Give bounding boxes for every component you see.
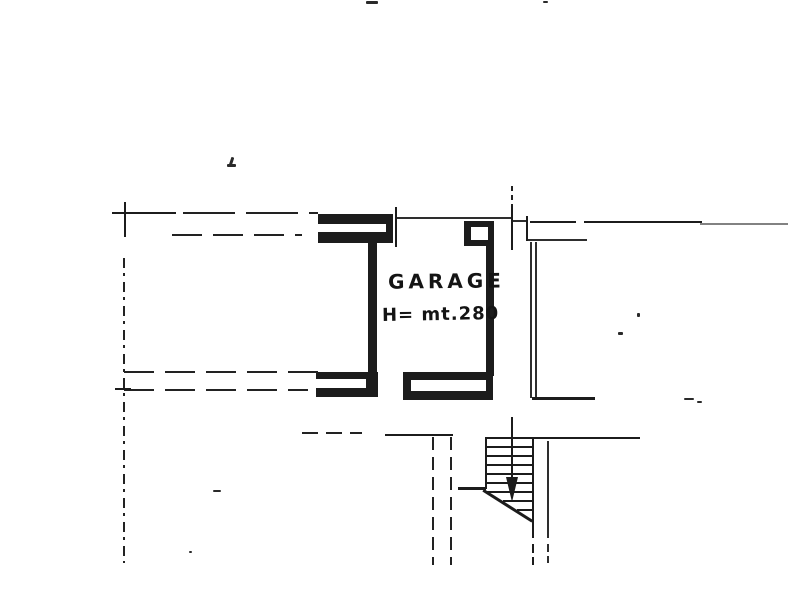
bottom-boundary-dashed-upper bbox=[124, 371, 318, 373]
scan-speck bbox=[684, 398, 694, 400]
stair-top-line bbox=[486, 437, 640, 439]
scan-speck bbox=[189, 551, 192, 553]
ink-mark bbox=[227, 164, 236, 167]
scan-speck bbox=[543, 1, 548, 3]
stair-right-edge-dash bbox=[532, 544, 534, 553]
boundary-line-right-faint bbox=[700, 223, 788, 225]
stair-tread bbox=[486, 473, 533, 475]
bottom-wall-left-cavity bbox=[306, 379, 366, 388]
stair-tread bbox=[486, 446, 533, 448]
right-partition-line bbox=[535, 242, 537, 398]
bottom-boundary-dashed-lower bbox=[124, 389, 308, 391]
stair-direction-arrow-icon bbox=[506, 477, 518, 502]
left-property-line-dashdot bbox=[123, 258, 125, 563]
stair-tread bbox=[486, 464, 533, 466]
survey-tick-vertical bbox=[124, 202, 126, 237]
stair-tread bbox=[486, 455, 533, 457]
bottom-wall-right-cavity bbox=[411, 380, 486, 391]
stair-outer-line bbox=[547, 441, 549, 538]
scan-speck bbox=[637, 313, 640, 317]
scan-speck bbox=[366, 1, 378, 4]
boundary-line-upper bbox=[112, 212, 176, 214]
stair-outer-line-dash bbox=[547, 544, 549, 552]
stair-right-edge-dash bbox=[532, 557, 534, 565]
stair-outer-line-dash bbox=[547, 556, 549, 563]
corridor-wall-line bbox=[385, 434, 453, 436]
corridor-dashed-vertical bbox=[450, 437, 452, 565]
right-partition-corner bbox=[532, 397, 595, 400]
scan-speck bbox=[213, 490, 221, 492]
door-axis-dashed bbox=[511, 186, 513, 206]
stair-right-edge bbox=[532, 437, 534, 538]
right-partition-line bbox=[530, 242, 532, 398]
garage-room-label: GARAGE bbox=[388, 268, 505, 293]
boundary-line-right bbox=[584, 221, 702, 223]
scan-speck bbox=[618, 332, 623, 335]
corridor-dashed-line bbox=[302, 432, 362, 434]
garage-door-line bbox=[397, 217, 512, 219]
top-wall-left-cavity bbox=[308, 224, 386, 232]
top-wall-end-tick bbox=[395, 207, 397, 247]
door-pillar-cavity bbox=[471, 227, 488, 240]
wall-tick bbox=[526, 216, 528, 241]
garage-height-label: H= mt.280 bbox=[382, 303, 500, 326]
stair-landing-wall bbox=[458, 487, 486, 490]
scan-speck bbox=[697, 401, 702, 403]
boundary-line-upper-dashed bbox=[183, 212, 318, 214]
boundary-line-lower-dashed bbox=[172, 234, 302, 236]
boundary-line-right bbox=[530, 221, 576, 223]
corridor-dashed-vertical bbox=[432, 437, 434, 565]
neighbour-wall-inner-line bbox=[528, 239, 587, 241]
stair-centerline bbox=[511, 417, 513, 479]
floor-plan: GARAGE H= mt.280 bbox=[0, 0, 800, 600]
door-axis bbox=[511, 206, 513, 250]
